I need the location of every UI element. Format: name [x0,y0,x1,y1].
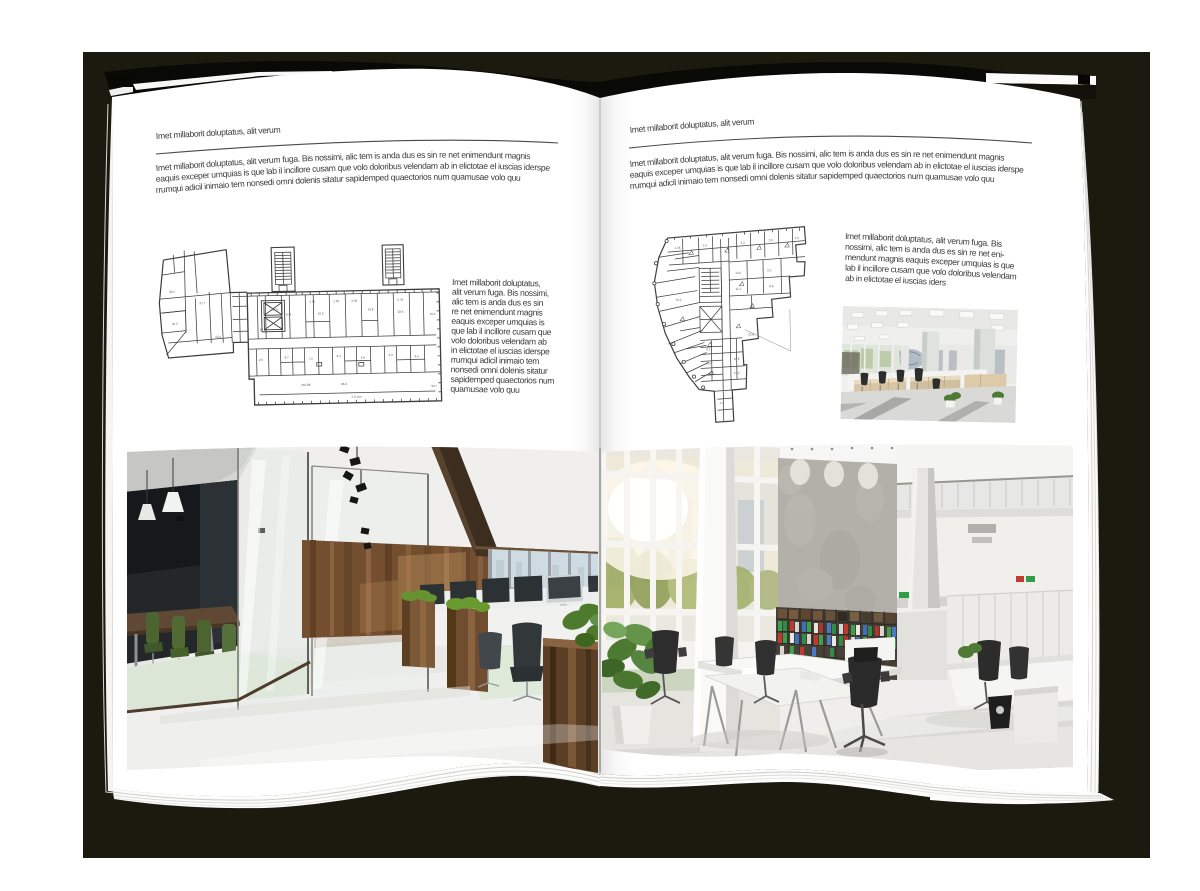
svg-text:40.3: 40.3 [172,322,178,326]
svg-text:2.6: 2.6 [259,358,264,362]
svg-text:16.2: 16.2 [318,311,324,315]
svg-text:19.8: 19.8 [368,307,374,311]
svg-text:8.8: 8.8 [769,284,774,288]
svg-text:9.2: 9.2 [767,268,772,272]
svg-text:6.6: 6.6 [415,354,420,358]
svg-text:2.8: 2.8 [769,238,774,242]
svg-text:8.7: 8.7 [285,355,290,359]
svg-text:6.4: 6.4 [337,354,342,358]
svg-text:2.30: 2.30 [333,299,339,303]
svg-text:4.7: 4.7 [719,401,724,405]
svg-text:6.1: 6.1 [706,347,711,351]
svg-text:14.6: 14.6 [735,271,741,275]
svg-text:28.6: 28.6 [398,310,404,314]
svg-text:2.95: 2.95 [309,300,315,304]
svg-text:11.8: 11.8 [286,312,292,316]
svg-text:5.3: 5.3 [389,353,394,357]
svg-text:43.4: 43.4 [215,335,221,339]
svg-text:5.9: 5.9 [707,361,712,365]
svg-text:3.09: 3.09 [351,299,357,303]
svg-text:11.4: 11.4 [735,287,741,291]
svg-text:5.78: 5.78 [397,298,403,302]
svg-text:27.8: 27.8 [260,328,266,332]
svg-text:12.2: 12.2 [734,371,740,375]
svg-text:7.2: 7.2 [309,357,314,361]
svg-text:4.8: 4.8 [361,356,366,360]
svg-text:76.2: 76.2 [676,298,682,302]
svg-text:22.8: 22.8 [748,333,754,337]
svg-text:2.9: 2.9 [703,243,708,247]
svg-text:37.7: 37.7 [199,301,205,305]
svg-text:36.2: 36.2 [169,290,175,294]
svg-text:1.9: 1.9 [795,236,800,240]
svg-text:562.88: 562.88 [301,383,311,387]
svg-text:2.70: 2.70 [272,307,278,311]
svg-text:18.6: 18.6 [734,357,740,361]
svg-text:3.2: 3.2 [741,241,746,245]
svg-text:2-й зал: 2-й зал [351,395,361,399]
svg-text:1.36: 1.36 [675,246,681,250]
svg-text:10.2: 10.2 [430,312,436,316]
svg-text:86.3: 86.3 [341,382,347,386]
svg-text:90.7: 90.7 [431,384,437,388]
svg-text:quamusae volo quu: quamusae volo quu [450,384,520,395]
